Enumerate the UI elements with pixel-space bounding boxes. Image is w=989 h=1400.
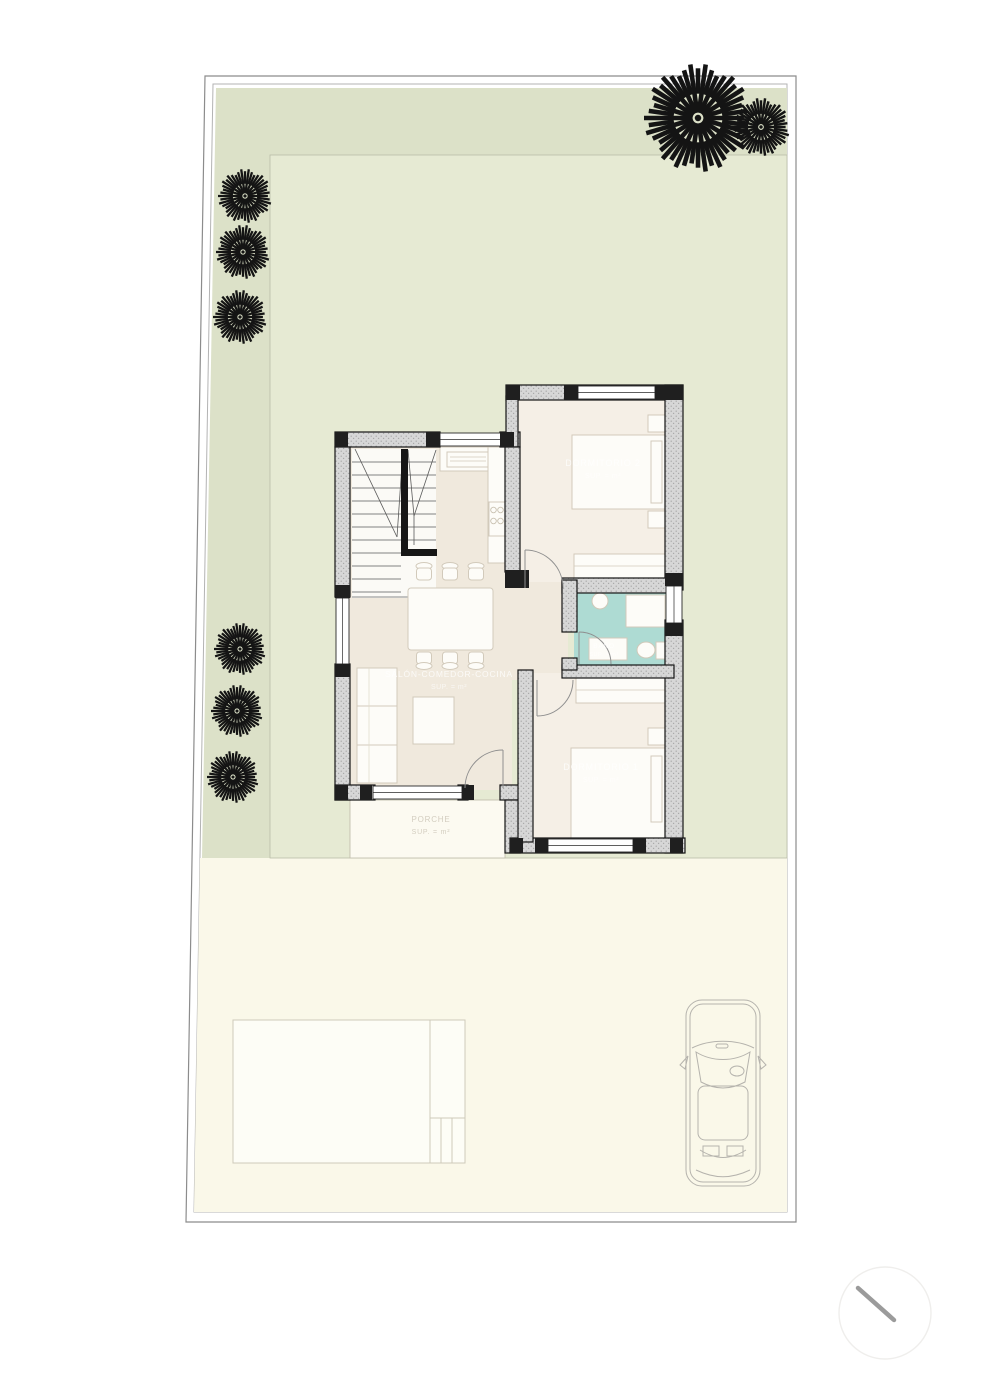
svg-text:SUP. = m²: SUP. = m²	[431, 684, 467, 691]
site-plan-drawing: SALÓN-COMEDOR-COCINA SUP. = m² DORMITORI…	[0, 0, 989, 1400]
bedroom-2-label: DORMITORIO 2	[565, 458, 640, 468]
nightstand	[648, 511, 665, 528]
toilet-icon	[637, 642, 655, 658]
bedroom-1-label: DORMITORIO 1	[563, 762, 638, 772]
stair-inner-wall	[401, 549, 437, 556]
svg-text:SUP. = m²: SUP. = m²	[412, 829, 451, 836]
pillow	[651, 441, 662, 503]
svg-text:SUP. = m²: SUP. = m²	[583, 777, 619, 784]
toilet-tank	[656, 642, 665, 659]
sofa	[357, 668, 397, 783]
north-arrow-icon	[839, 1267, 931, 1359]
svg-text:SUP. = m²: SUP. = m²	[589, 652, 618, 658]
pillow	[651, 756, 662, 822]
floor-plan-canvas: SALÓN-COMEDOR-COCINA SUP. = m² DORMITORI…	[0, 0, 989, 1400]
porch-label: PORCHE	[411, 815, 450, 824]
svg-text:SUP. = m²: SUP. = m²	[585, 473, 621, 480]
bath-sink	[592, 593, 608, 609]
shower	[626, 595, 665, 627]
bathroom-label: BAÑO	[593, 641, 615, 650]
living-room-label: SALÓN-COMEDOR-COCINA	[385, 669, 513, 679]
stair-inner-wall	[401, 449, 408, 555]
coffee-table	[413, 697, 454, 744]
pool-terrace	[233, 1020, 465, 1163]
dining-table	[408, 588, 493, 650]
nightstand	[648, 415, 665, 432]
kitchen-sink	[447, 452, 489, 467]
wardrobe	[576, 678, 665, 703]
nightstand	[648, 728, 665, 745]
